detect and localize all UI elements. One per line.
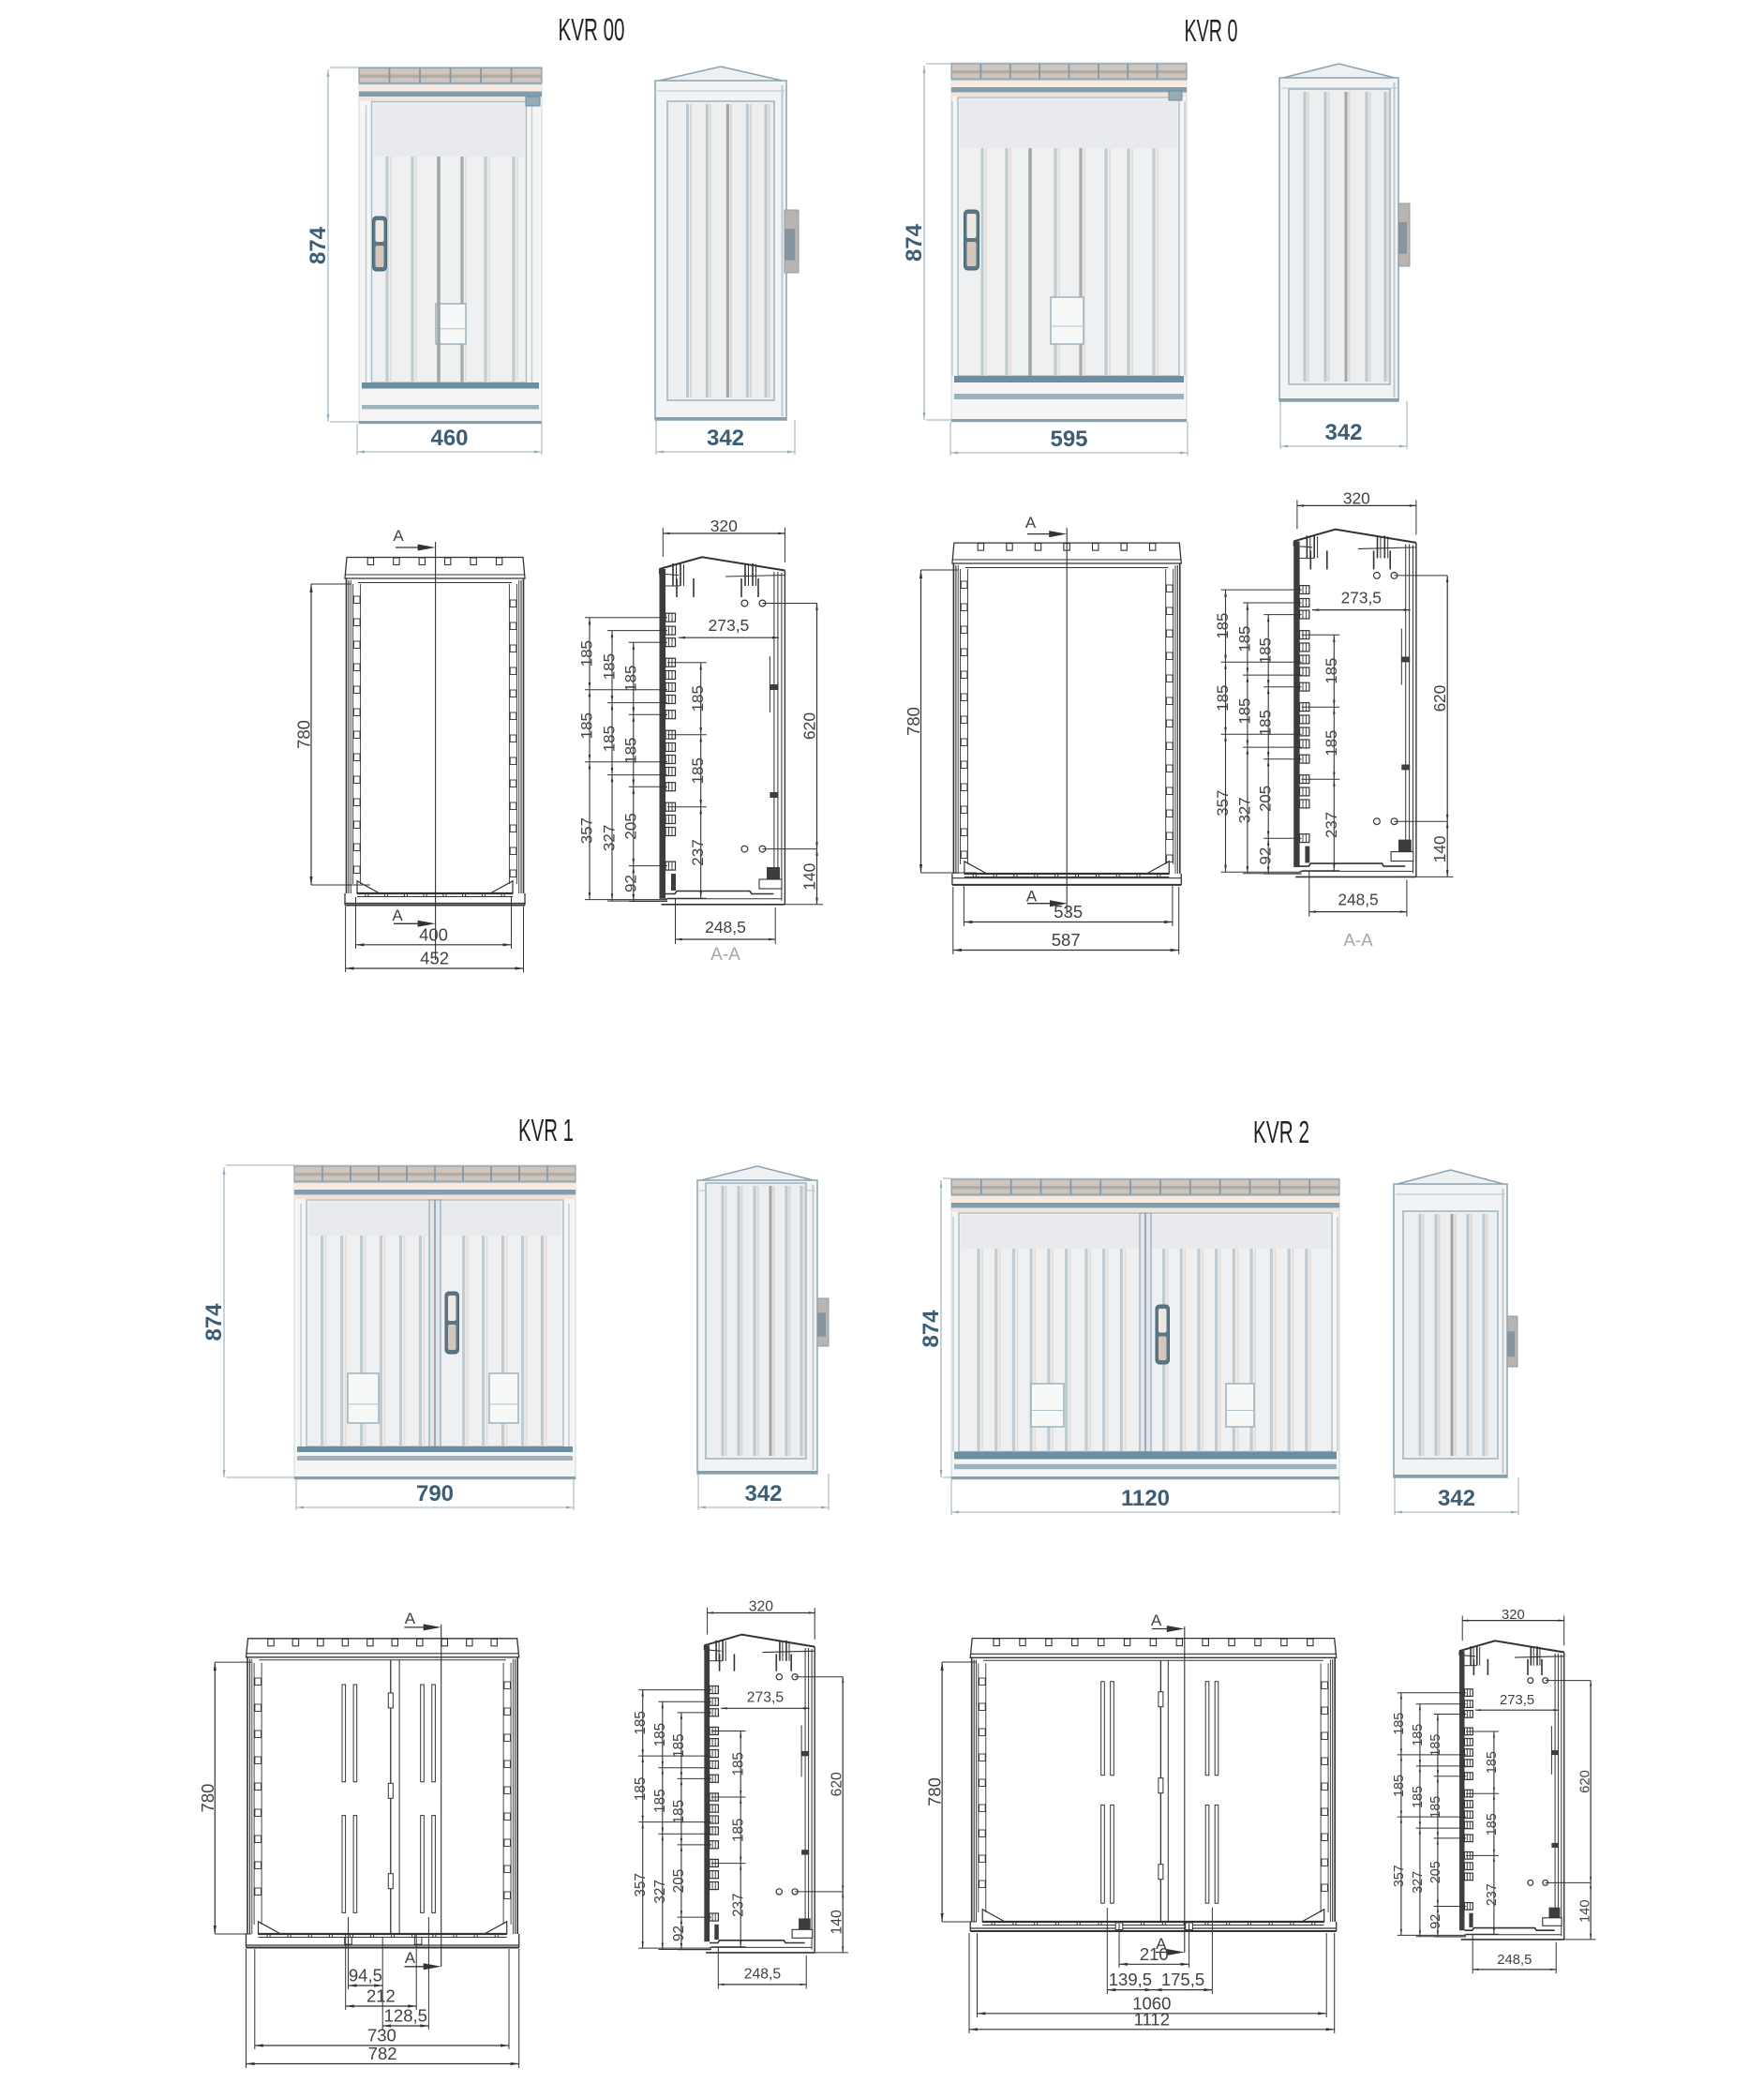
svg-text:185: 185 xyxy=(652,1789,668,1812)
svg-text:1112: 1112 xyxy=(1134,2009,1170,2029)
svg-text:342: 342 xyxy=(1324,420,1362,445)
svg-text:140: 140 xyxy=(830,1910,845,1934)
svg-text:874: 874 xyxy=(902,223,927,262)
svg-text:327: 327 xyxy=(1411,1871,1426,1894)
svg-text:A: A xyxy=(392,907,403,924)
svg-text:A: A xyxy=(1151,1611,1162,1629)
svg-text:185: 185 xyxy=(652,1723,668,1746)
svg-text:327: 327 xyxy=(601,825,619,851)
svg-text:790: 790 xyxy=(416,1481,454,1506)
svg-text:205: 205 xyxy=(1257,786,1275,812)
svg-text:620: 620 xyxy=(800,712,819,740)
svg-text:140: 140 xyxy=(800,862,819,890)
svg-text:248,5: 248,5 xyxy=(1497,1953,1532,1968)
svg-text:620: 620 xyxy=(1430,685,1449,712)
svg-text:185: 185 xyxy=(1485,1751,1500,1774)
svg-text:185: 185 xyxy=(633,1711,649,1734)
svg-text:185: 185 xyxy=(601,653,619,680)
svg-text:140: 140 xyxy=(1430,835,1449,862)
svg-text:128,5: 128,5 xyxy=(384,2006,427,2026)
svg-text:185: 185 xyxy=(1323,658,1340,684)
svg-text:357: 357 xyxy=(633,1873,649,1896)
svg-text:A: A xyxy=(393,527,404,545)
svg-text:780: 780 xyxy=(925,1777,945,1806)
svg-text:185: 185 xyxy=(621,666,639,692)
svg-text:452: 452 xyxy=(420,949,449,968)
svg-text:342: 342 xyxy=(707,426,744,451)
svg-text:320: 320 xyxy=(1343,488,1370,507)
svg-text:A: A xyxy=(1025,514,1037,532)
svg-text:92: 92 xyxy=(621,875,639,892)
svg-text:KVR 0: KVR 0 xyxy=(1185,13,1238,48)
svg-text:185: 185 xyxy=(730,1819,746,1842)
svg-text:237: 237 xyxy=(730,1893,746,1916)
svg-text:205: 205 xyxy=(621,813,639,839)
svg-text:A-A: A-A xyxy=(1343,930,1373,950)
svg-text:185: 185 xyxy=(1392,1713,1407,1735)
svg-text:A: A xyxy=(1026,888,1038,906)
svg-text:185: 185 xyxy=(621,738,639,764)
svg-text:320: 320 xyxy=(710,517,738,535)
svg-text:185: 185 xyxy=(1257,710,1275,736)
svg-text:92: 92 xyxy=(1428,1914,1443,1929)
svg-text:237: 237 xyxy=(689,839,707,865)
svg-text:780: 780 xyxy=(294,720,314,749)
svg-text:92: 92 xyxy=(1257,847,1275,865)
svg-text:185: 185 xyxy=(689,685,707,712)
svg-text:185: 185 xyxy=(1235,698,1253,725)
svg-text:874: 874 xyxy=(202,1303,227,1341)
svg-text:400: 400 xyxy=(419,924,448,944)
svg-text:320: 320 xyxy=(1502,1608,1525,1623)
svg-text:205: 205 xyxy=(671,1869,687,1893)
svg-text:KVR 2: KVR 2 xyxy=(1253,1115,1309,1149)
svg-text:248,5: 248,5 xyxy=(744,1967,782,1983)
svg-text:185: 185 xyxy=(1428,1796,1443,1819)
svg-text:320: 320 xyxy=(749,1599,773,1615)
svg-text:A: A xyxy=(405,1610,416,1627)
svg-text:185: 185 xyxy=(1214,685,1232,712)
svg-text:620: 620 xyxy=(830,1772,845,1796)
svg-text:248,5: 248,5 xyxy=(1338,891,1378,909)
svg-text:KVR 00: KVR 00 xyxy=(559,12,625,47)
svg-text:237: 237 xyxy=(1323,812,1340,838)
svg-text:140: 140 xyxy=(1578,1899,1593,1923)
svg-text:205: 205 xyxy=(1428,1861,1443,1883)
svg-text:139,5: 139,5 xyxy=(1109,1970,1152,1989)
svg-text:A-A: A-A xyxy=(710,945,740,965)
svg-text:342: 342 xyxy=(744,1481,782,1506)
svg-text:A: A xyxy=(405,1949,416,1967)
svg-text:874: 874 xyxy=(306,226,331,264)
svg-text:780: 780 xyxy=(904,707,923,736)
svg-text:273,5: 273,5 xyxy=(709,616,750,635)
svg-text:730: 730 xyxy=(367,2026,396,2046)
svg-text:460: 460 xyxy=(430,426,468,451)
svg-text:212: 212 xyxy=(366,1986,396,2006)
svg-text:248,5: 248,5 xyxy=(705,918,746,937)
svg-text:185: 185 xyxy=(578,712,596,739)
svg-text:535: 535 xyxy=(1054,902,1083,922)
svg-text:273,5: 273,5 xyxy=(747,1690,785,1706)
svg-text:620: 620 xyxy=(1578,1770,1593,1793)
svg-text:357: 357 xyxy=(1214,790,1232,817)
svg-text:185: 185 xyxy=(1257,637,1275,664)
svg-text:782: 782 xyxy=(368,2044,397,2063)
svg-text:185: 185 xyxy=(1411,1724,1426,1746)
svg-text:185: 185 xyxy=(1235,626,1253,652)
svg-text:185: 185 xyxy=(1485,1813,1500,1836)
svg-text:357: 357 xyxy=(578,817,596,844)
svg-text:94,5: 94,5 xyxy=(349,1966,382,1986)
svg-text:780: 780 xyxy=(198,1784,217,1813)
svg-text:185: 185 xyxy=(1323,730,1340,757)
svg-text:185: 185 xyxy=(671,1800,687,1823)
svg-text:273,5: 273,5 xyxy=(1341,588,1382,607)
svg-text:595: 595 xyxy=(1050,427,1087,452)
svg-text:185: 185 xyxy=(671,1733,687,1757)
svg-text:327: 327 xyxy=(652,1880,668,1903)
svg-text:342: 342 xyxy=(1438,1486,1475,1511)
svg-text:92: 92 xyxy=(671,1926,687,1941)
svg-text:185: 185 xyxy=(578,640,596,667)
svg-text:185: 185 xyxy=(1392,1775,1407,1797)
svg-text:185: 185 xyxy=(601,726,619,752)
svg-text:KVR 1: KVR 1 xyxy=(518,1113,574,1147)
svg-text:237: 237 xyxy=(1485,1883,1500,1906)
svg-text:587: 587 xyxy=(1052,930,1081,950)
svg-text:185: 185 xyxy=(1411,1786,1426,1808)
svg-text:327: 327 xyxy=(1235,797,1253,823)
svg-text:185: 185 xyxy=(730,1752,746,1776)
svg-text:175,5: 175,5 xyxy=(1161,1970,1204,1989)
svg-text:185: 185 xyxy=(1428,1734,1443,1757)
svg-text:185: 185 xyxy=(633,1777,649,1801)
svg-text:210: 210 xyxy=(1140,1944,1169,1964)
svg-text:357: 357 xyxy=(1392,1865,1407,1887)
svg-text:185: 185 xyxy=(1214,613,1232,639)
svg-text:1120: 1120 xyxy=(1121,1486,1170,1511)
svg-text:273,5: 273,5 xyxy=(1500,1693,1534,1708)
svg-text:874: 874 xyxy=(919,1310,944,1348)
svg-text:185: 185 xyxy=(689,757,707,784)
